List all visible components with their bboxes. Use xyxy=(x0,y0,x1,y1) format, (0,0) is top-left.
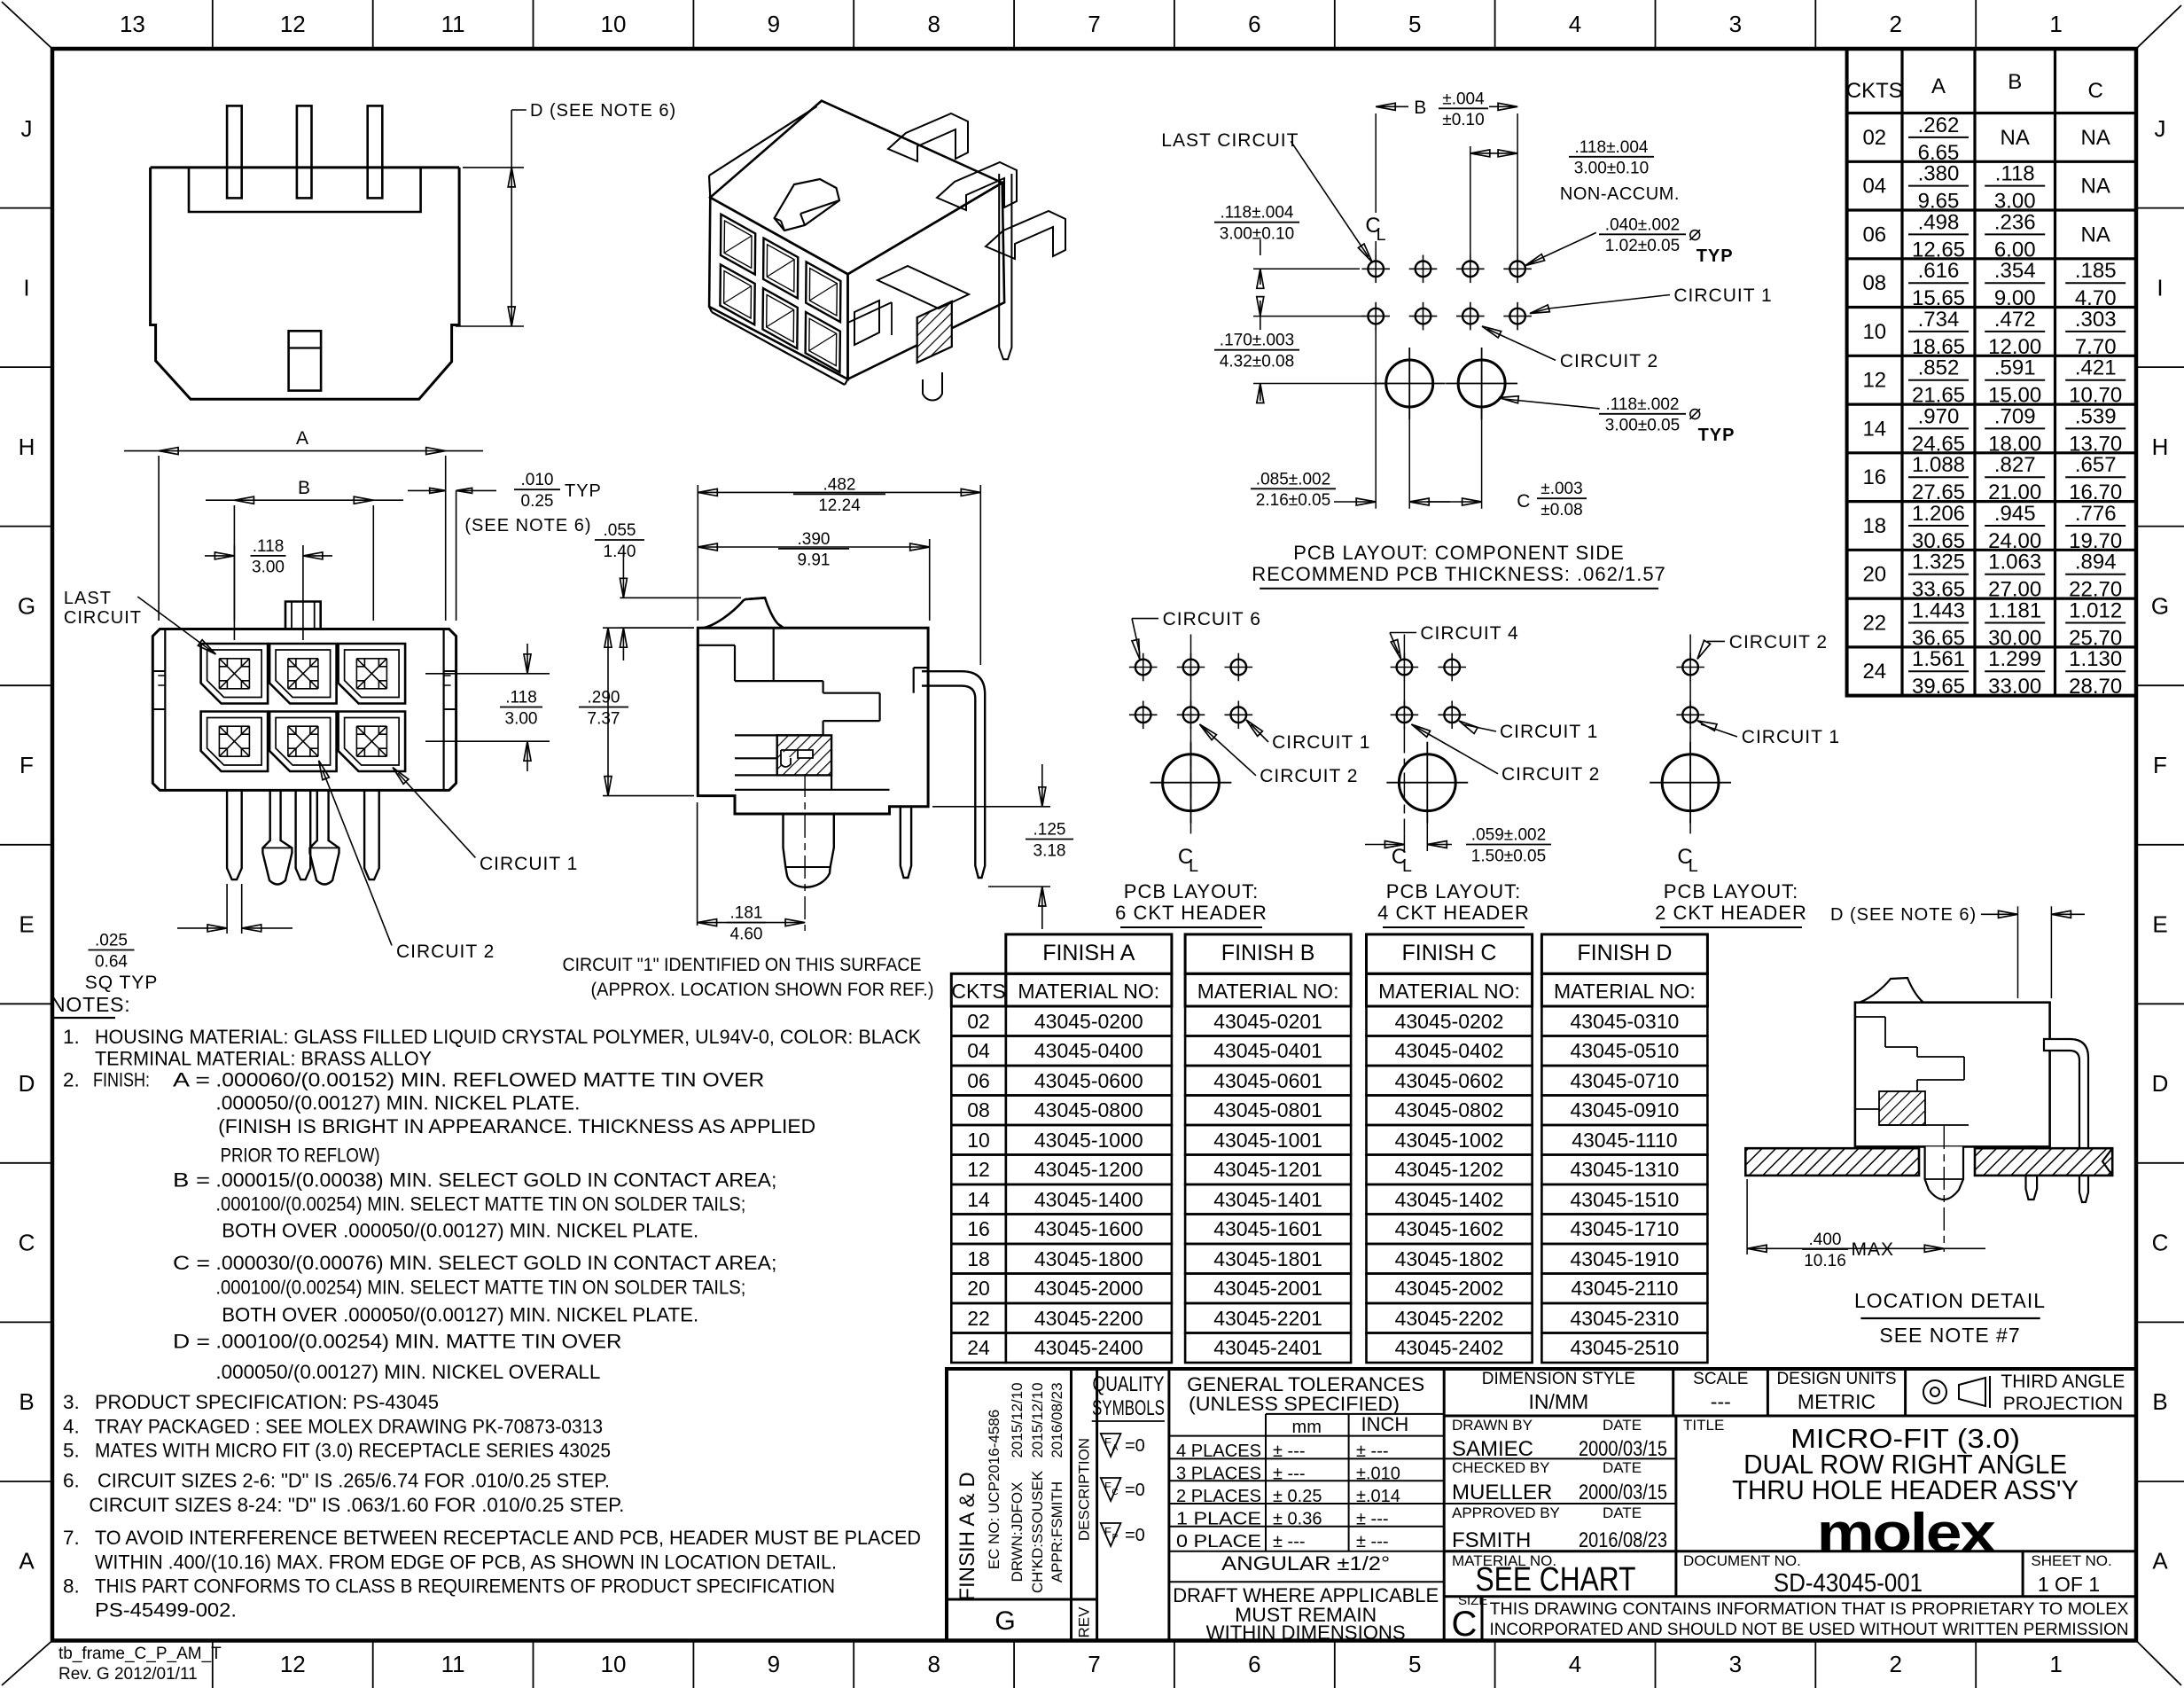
svg-text:43045-2001: 43045-2001 xyxy=(1213,1277,1322,1300)
svg-text:F: F xyxy=(1104,1435,1111,1449)
svg-text:D: D xyxy=(19,1070,35,1097)
svg-text:43045-1201: 43045-1201 xyxy=(1213,1158,1322,1181)
svg-text:18: 18 xyxy=(1862,514,1886,538)
svg-text:.000100/(0.00254) MIN. SELECT: .000100/(0.00254) MIN. SELECT MATTE TIN … xyxy=(215,1193,745,1215)
svg-text:INCH: INCH xyxy=(1361,1413,1409,1435)
svg-text:1.325: 1.325 xyxy=(1912,551,1965,574)
svg-text:1.02±0.05: 1.02±0.05 xyxy=(1605,237,1680,255)
svg-text:SD-43045-001: SD-43045-001 xyxy=(1774,1569,1923,1598)
svg-text:LAST CIRCUIT: LAST CIRCUIT xyxy=(1161,130,1299,151)
svg-text:3.00±0.10: 3.00±0.10 xyxy=(1574,160,1649,178)
svg-text:3 PLACES: 3 PLACES xyxy=(1176,1465,1261,1484)
svg-text:43045-1802: 43045-1802 xyxy=(1395,1247,1504,1270)
svg-text:.000030/(0.00076) MIN. SELECT: .000030/(0.00076) MIN. SELECT GOLD IN CO… xyxy=(215,1252,776,1274)
svg-text:I: I xyxy=(2157,274,2163,301)
svg-text:CIRCUIT 1: CIRCUIT 1 xyxy=(480,854,578,874)
svg-text:12.24: 12.24 xyxy=(818,496,861,515)
svg-text:14: 14 xyxy=(1862,417,1886,441)
svg-text:(APPROX. LOCATION SHOWN FOR RE: (APPROX. LOCATION SHOWN FOR REF.) xyxy=(591,980,934,1000)
svg-text:43045-1000: 43045-1000 xyxy=(1034,1129,1143,1152)
svg-text:±.003: ±.003 xyxy=(1540,480,1582,498)
svg-text:DRAWN BY: DRAWN BY xyxy=(1452,1417,1533,1434)
svg-text:3: 3 xyxy=(1729,1651,1742,1677)
svg-text:=0: =0 xyxy=(1125,1436,1145,1456)
svg-text:6 CKT HEADER: 6 CKT HEADER xyxy=(1115,902,1267,924)
svg-text:G: G xyxy=(2151,592,2169,619)
svg-text:CKTS: CKTS xyxy=(1846,79,1903,103)
svg-text:CIRCUIT 1: CIRCUIT 1 xyxy=(1742,727,1840,747)
svg-text:43045-2000: 43045-2000 xyxy=(1034,1277,1143,1300)
svg-text:B: B xyxy=(19,1388,34,1415)
svg-text:2.16±0.05: 2.16±0.05 xyxy=(1256,491,1330,510)
svg-text:CIRCUIT 6: CIRCUIT 6 xyxy=(1163,609,1261,629)
svg-text:THRU HOLE HEADER ASS'Y: THRU HOLE HEADER ASS'Y xyxy=(1732,1474,2079,1505)
svg-text:FINISH C: FINISH C xyxy=(1402,941,1497,965)
svg-text:.125: .125 xyxy=(1033,821,1066,840)
svg-text:⌀: ⌀ xyxy=(1689,401,1701,425)
svg-text:24: 24 xyxy=(1862,660,1886,684)
svg-text:SCALE: SCALE xyxy=(1693,1370,1748,1388)
svg-text:1.299: 1.299 xyxy=(1988,647,2041,671)
svg-text:02: 02 xyxy=(967,1010,990,1033)
svg-text:APPR:FSMITH: APPR:FSMITH xyxy=(1049,1481,1065,1582)
svg-text:22: 22 xyxy=(1862,612,1886,636)
svg-text:=0: =0 xyxy=(1125,1481,1145,1500)
svg-text:43045-0200: 43045-0200 xyxy=(1034,1010,1143,1033)
svg-text:WITHIN .400/(10.16) MAX. FROM: WITHIN .400/(10.16) MAX. FROM EDGE OF PC… xyxy=(95,1551,837,1574)
svg-text:1.088: 1.088 xyxy=(1912,453,1965,477)
svg-text:.400: .400 xyxy=(1809,1231,1842,1249)
svg-text:.118±.004: .118±.004 xyxy=(1575,138,1649,157)
svg-text:FINISH B: FINISH B xyxy=(1221,941,1315,965)
svg-text:± ---: ± --- xyxy=(1356,1532,1389,1551)
svg-text:10: 10 xyxy=(601,1651,627,1677)
svg-text:2016/08/23: 2016/08/23 xyxy=(1579,1528,1667,1552)
svg-text:2015/12/10: 2015/12/10 xyxy=(1009,1382,1026,1457)
svg-text:CIRCUIT 2: CIRCUIT 2 xyxy=(1260,766,1358,786)
svg-text:02: 02 xyxy=(1862,126,1886,150)
svg-text:.055: .055 xyxy=(604,521,636,540)
svg-text:43045-1202: 43045-1202 xyxy=(1395,1158,1504,1181)
svg-text:MATERIAL NO:: MATERIAL NO: xyxy=(1197,980,1339,1003)
svg-text:=0: =0 xyxy=(1125,1526,1145,1545)
svg-text:3.00±0.10: 3.00±0.10 xyxy=(1220,225,1294,244)
svg-text:08: 08 xyxy=(1862,271,1886,295)
svg-text:E: E xyxy=(19,911,34,938)
svg-text:.482: .482 xyxy=(823,475,856,494)
svg-text:L: L xyxy=(1689,856,1698,876)
svg-text:0 PLACE: 0 PLACE xyxy=(1176,1532,1261,1551)
svg-text:B: B xyxy=(1414,98,1426,118)
svg-text:08: 08 xyxy=(967,1098,990,1121)
svg-text:3.00: 3.00 xyxy=(505,709,538,728)
svg-text:F: F xyxy=(1104,1480,1111,1493)
svg-text:.354: .354 xyxy=(1994,259,2036,283)
svg-text:2 PLACES: 2 PLACES xyxy=(1176,1487,1261,1506)
svg-text:SEE NOTE #7: SEE NOTE #7 xyxy=(1879,1324,2020,1347)
svg-text:6.: 6. xyxy=(63,1470,80,1492)
svg-text:43045-0602: 43045-0602 xyxy=(1395,1069,1504,1092)
svg-text:22: 22 xyxy=(967,1307,990,1330)
svg-text:F: F xyxy=(1104,1525,1111,1538)
svg-text:43045-0600: 43045-0600 xyxy=(1034,1069,1143,1092)
svg-text:43045-2110: 43045-2110 xyxy=(1571,1277,1678,1300)
svg-text:Rev. G 2012/01/11: Rev. G 2012/01/11 xyxy=(58,1665,198,1684)
svg-text:H: H xyxy=(19,434,35,460)
svg-text:.421: .421 xyxy=(2075,356,2117,380)
svg-text:9: 9 xyxy=(768,1651,780,1677)
svg-text:SEE CHART: SEE CHART xyxy=(1476,1561,1636,1598)
svg-text:LAST: LAST xyxy=(64,589,112,608)
svg-text:18: 18 xyxy=(967,1247,990,1270)
svg-text:± ---: ± --- xyxy=(1356,1442,1389,1461)
svg-text:TRAY PACKAGED : SEE MOLEX DRAW: TRAY PACKAGED : SEE MOLEX DRAWING PK-708… xyxy=(95,1415,603,1437)
svg-text:G: G xyxy=(994,1606,1015,1636)
svg-text:43045-1800: 43045-1800 xyxy=(1034,1247,1143,1270)
svg-text:43045-0510: 43045-0510 xyxy=(1571,1039,1680,1062)
svg-text:B: B xyxy=(2008,70,2022,94)
svg-text:PCB LAYOUT:: PCB LAYOUT: xyxy=(1664,880,1798,903)
svg-text:2 CKT HEADER: 2 CKT HEADER xyxy=(1655,902,1807,924)
svg-text:.000050/(0.00127) MIN. NICKEL: .000050/(0.00127) MIN. NICKEL OVERALL xyxy=(215,1361,600,1383)
svg-text:A: A xyxy=(1931,74,1946,98)
svg-text:43045-1200: 43045-1200 xyxy=(1034,1158,1143,1181)
svg-text:20: 20 xyxy=(1862,563,1886,587)
svg-text:BOTH OVER .000050/(0.00127) MI: BOTH OVER .000050/(0.00127) MIN. NICKEL … xyxy=(222,1303,698,1325)
svg-text:J: J xyxy=(21,115,33,142)
svg-text:B =: B = xyxy=(173,1169,210,1192)
svg-text:DRWN:JDFOX: DRWN:JDFOX xyxy=(1009,1481,1026,1582)
svg-text:0.25: 0.25 xyxy=(521,492,554,511)
svg-text:NA: NA xyxy=(2081,223,2110,246)
svg-text:MATES WITH MICRO FIT (3.0) REC: MATES WITH MICRO FIT (3.0) RECEPTACLE SE… xyxy=(95,1439,611,1461)
svg-text:± 0.36: ± 0.36 xyxy=(1273,1509,1322,1528)
svg-text:43045-0910: 43045-0910 xyxy=(1571,1098,1680,1121)
svg-text:SHEET NO.: SHEET NO. xyxy=(2031,1552,2111,1569)
svg-text:A: A xyxy=(2152,1548,2168,1575)
svg-text:CIRCUIT 4: CIRCUIT 4 xyxy=(1420,623,1518,644)
svg-text:IN/MM: IN/MM xyxy=(1528,1390,1588,1413)
svg-text:±0.08: ±0.08 xyxy=(1540,501,1582,520)
svg-text:04: 04 xyxy=(967,1039,990,1062)
svg-text:43045-0401: 43045-0401 xyxy=(1213,1039,1322,1062)
svg-text:7.: 7. xyxy=(63,1527,80,1549)
svg-text:1.443: 1.443 xyxy=(1912,599,1965,623)
svg-text:.539: .539 xyxy=(2075,404,2117,428)
svg-text:± 0.25: ± 0.25 xyxy=(1273,1487,1322,1506)
svg-text:H: H xyxy=(2152,434,2169,460)
svg-text:43045-2201: 43045-2201 xyxy=(1213,1307,1322,1330)
svg-text:43045-0710: 43045-0710 xyxy=(1571,1069,1680,1092)
svg-text:5: 5 xyxy=(1408,1651,1421,1677)
svg-text:10: 10 xyxy=(601,11,627,37)
svg-text:.945: .945 xyxy=(1994,502,2036,526)
svg-text:1.130: 1.130 xyxy=(2069,647,2122,671)
svg-text:.290: .290 xyxy=(588,689,620,707)
svg-text:1.206: 1.206 xyxy=(1912,502,1965,526)
svg-text:PS-45499-002.: PS-45499-002. xyxy=(95,1599,237,1622)
svg-text:43045-1601: 43045-1601 xyxy=(1213,1217,1322,1240)
svg-text:43045-0310: 43045-0310 xyxy=(1571,1010,1680,1033)
svg-text:NA: NA xyxy=(2081,175,2110,199)
svg-text:(UNLESS SPECIFIED): (UNLESS SPECIFIED) xyxy=(1189,1393,1400,1415)
svg-text:APPROVED BY: APPROVED BY xyxy=(1452,1504,1560,1521)
svg-text:5.: 5. xyxy=(63,1439,80,1461)
svg-text:ANGULAR ±1/2°: ANGULAR ±1/2° xyxy=(1221,1552,1390,1575)
svg-text:NOTES:: NOTES: xyxy=(51,993,130,1016)
svg-text:11: 11 xyxy=(441,11,465,37)
svg-text:43045-0402: 43045-0402 xyxy=(1395,1039,1504,1062)
svg-text:NON-ACCUM.: NON-ACCUM. xyxy=(1560,184,1680,204)
svg-text:DIMENSION STYLE: DIMENSION STYLE xyxy=(1482,1370,1635,1388)
svg-text:1.: 1. xyxy=(63,1026,80,1048)
svg-text:43045-2510: 43045-2510 xyxy=(1571,1336,1680,1359)
svg-text:F: F xyxy=(2153,752,2167,778)
svg-text:MATERIAL NO:: MATERIAL NO: xyxy=(1378,980,1520,1003)
svg-text:.059±.002: .059±.002 xyxy=(1471,826,1546,845)
svg-text:.000100/(0.00254) MIN. MATTE T: .000100/(0.00254) MIN. MATTE TIN OVER xyxy=(215,1331,621,1353)
svg-text:FINISH A: FINISH A xyxy=(1042,941,1135,965)
svg-text:1: 1 xyxy=(2049,1651,2062,1677)
svg-text:PCB LAYOUT:: PCB LAYOUT: xyxy=(1124,880,1259,903)
svg-text:± ---: ± --- xyxy=(1356,1509,1389,1528)
svg-text:J: J xyxy=(2155,115,2166,142)
svg-text:C: C xyxy=(1517,491,1530,512)
svg-text:39.65: 39.65 xyxy=(1912,675,1965,699)
svg-text:DESIGN UNITS: DESIGN UNITS xyxy=(1776,1370,1896,1388)
svg-text:1 OF 1: 1 OF 1 xyxy=(2038,1573,2100,1596)
svg-text:L: L xyxy=(1402,856,1412,876)
svg-text:F: F xyxy=(19,752,34,778)
svg-text:4.32±0.08: 4.32±0.08 xyxy=(1220,353,1294,371)
svg-text:D (SEE NOTE 6): D (SEE NOTE 6) xyxy=(1830,905,1977,925)
svg-text:2016/08/23: 2016/08/23 xyxy=(1049,1382,1065,1457)
svg-text:1.561: 1.561 xyxy=(1912,647,1965,671)
svg-text:43045-1001: 43045-1001 xyxy=(1213,1129,1322,1152)
svg-text:A: A xyxy=(1112,1443,1119,1453)
svg-text:DATE: DATE xyxy=(1603,1504,1642,1521)
svg-text:6: 6 xyxy=(1248,1651,1260,1677)
svg-text:± ---: ± --- xyxy=(1273,1442,1306,1461)
svg-text:NA: NA xyxy=(2081,126,2110,150)
svg-text:(FINISH IS BRIGHT IN APPEARANC: (FINISH IS BRIGHT IN APPEARANCE. THICKNE… xyxy=(218,1115,815,1137)
svg-text:MUELLER: MUELLER xyxy=(1452,1481,1552,1504)
svg-text:E: E xyxy=(2152,911,2167,938)
svg-text:43045-0201: 43045-0201 xyxy=(1213,1010,1322,1033)
svg-text:---: --- xyxy=(1711,1390,1731,1413)
svg-text:8.: 8. xyxy=(63,1575,80,1598)
svg-text:3.: 3. xyxy=(63,1391,80,1413)
svg-text:mm: mm xyxy=(1292,1418,1322,1437)
svg-text:B: B xyxy=(2152,1388,2167,1415)
svg-text:.000060/(0.00152) MIN. REFLOWE: .000060/(0.00152) MIN. REFLOWED MATTE TI… xyxy=(215,1069,764,1091)
svg-text:FINISH D: FINISH D xyxy=(1577,941,1672,965)
svg-text:43045-1402: 43045-1402 xyxy=(1395,1188,1504,1211)
svg-text:P: P xyxy=(1112,1533,1119,1543)
svg-text:.000015/(0.00038) MIN. SELECT: .000015/(0.00038) MIN. SELECT GOLD IN CO… xyxy=(215,1169,776,1192)
svg-text:.616: .616 xyxy=(1918,259,1960,283)
svg-text:2000/03/15: 2000/03/15 xyxy=(1579,1437,1667,1461)
svg-text:14: 14 xyxy=(967,1188,990,1211)
svg-text:.185: .185 xyxy=(2075,259,2117,283)
svg-text:.657: .657 xyxy=(2075,453,2117,477)
svg-text:.118±.004: .118±.004 xyxy=(1221,204,1294,223)
svg-text:.118: .118 xyxy=(505,689,537,707)
svg-text:43045-0801: 43045-0801 xyxy=(1213,1098,1322,1121)
svg-text:3: 3 xyxy=(1729,11,1742,37)
svg-text:C: C xyxy=(2152,1230,2169,1256)
svg-text:43045-0400: 43045-0400 xyxy=(1034,1039,1143,1062)
svg-text:3.00: 3.00 xyxy=(252,559,285,577)
svg-text:.118±.002: .118±.002 xyxy=(1606,395,1680,414)
svg-text:CIRCUIT 1: CIRCUIT 1 xyxy=(1673,285,1772,306)
svg-text:10: 10 xyxy=(967,1129,990,1152)
svg-text:MATERIAL NO:: MATERIAL NO: xyxy=(1018,980,1159,1003)
svg-text:EC NO: UCP2016-4586: EC NO: UCP2016-4586 xyxy=(986,1410,1002,1569)
svg-text:FSMITH: FSMITH xyxy=(1452,1528,1531,1552)
svg-text:.852: .852 xyxy=(1918,356,1960,380)
svg-text:.085±.002: .085±.002 xyxy=(1256,470,1330,488)
svg-text:MAX: MAX xyxy=(1852,1239,1895,1260)
svg-text:tb_frame_C_P_AM_T: tb_frame_C_P_AM_T xyxy=(58,1645,222,1663)
svg-text:.734: .734 xyxy=(1918,308,1960,332)
svg-text:.010: .010 xyxy=(521,471,554,489)
svg-text:NA: NA xyxy=(2001,126,2030,150)
svg-text:PCB LAYOUT: COMPONENT SIDE: PCB LAYOUT: COMPONENT SIDE xyxy=(1293,542,1625,564)
svg-text:43045-1910: 43045-1910 xyxy=(1571,1247,1680,1270)
svg-text:28.70: 28.70 xyxy=(2069,675,2122,699)
svg-text:43045-0202: 43045-0202 xyxy=(1395,1010,1504,1033)
svg-text:± ---: ± --- xyxy=(1273,1532,1306,1551)
svg-text:.303: .303 xyxy=(2075,308,2117,332)
svg-text:C: C xyxy=(1452,1605,1478,1644)
svg-text:CIRCUIT 2: CIRCUIT 2 xyxy=(1729,632,1828,653)
svg-text:PROJECTION: PROJECTION xyxy=(2003,1394,2123,1414)
svg-text:C =: C = xyxy=(173,1252,210,1274)
svg-text:CKTS: CKTS xyxy=(951,980,1005,1003)
svg-text:.498: .498 xyxy=(1918,210,1960,234)
svg-text:TYP: TYP xyxy=(565,481,602,501)
svg-text:.236: .236 xyxy=(1994,210,2036,234)
svg-text:.591: .591 xyxy=(1994,356,2036,380)
svg-text:PRODUCT SPECIFICATION: PS-430: PRODUCT SPECIFICATION: PS-43045 xyxy=(95,1391,439,1413)
svg-text:.827: .827 xyxy=(1994,453,2036,477)
svg-text:A: A xyxy=(19,1548,35,1575)
svg-text:THIRD ANGLE: THIRD ANGLE xyxy=(2001,1371,2125,1392)
svg-text:molex: molex xyxy=(1817,1503,1997,1564)
svg-text:CIRCUIT SIZES 8-24: "D" IS .06: CIRCUIT SIZES 8-24: "D" IS .063/1.60 FOR… xyxy=(89,1494,624,1516)
svg-text:D: D xyxy=(2152,1070,2169,1097)
svg-text:4: 4 xyxy=(1569,1651,1581,1677)
svg-text:43045-1110: 43045-1110 xyxy=(1572,1129,1677,1152)
svg-text:METRIC: METRIC xyxy=(1798,1390,1876,1413)
svg-text:06: 06 xyxy=(967,1069,990,1092)
svg-text:CIRCUIT 2: CIRCUIT 2 xyxy=(396,942,495,962)
svg-text:DOCUMENT NO.: DOCUMENT NO. xyxy=(1683,1552,1801,1569)
svg-text:HOUSING MATERIAL: GLASS FILLE: HOUSING MATERIAL: GLASS FILLED LIQUID CR… xyxy=(95,1026,921,1048)
svg-text:9.91: 9.91 xyxy=(798,551,831,570)
svg-text:.709: .709 xyxy=(1994,404,2036,428)
svg-text:TO AVOID INTERFERENCE BETWEEN: TO AVOID INTERFERENCE BETWEEN RECEPTACLE… xyxy=(95,1527,921,1549)
svg-text:CHECKED BY: CHECKED BY xyxy=(1452,1459,1550,1476)
svg-text:.118: .118 xyxy=(253,537,285,556)
svg-text:.894: .894 xyxy=(2075,551,2117,574)
svg-text:.118: .118 xyxy=(1995,162,2035,186)
svg-text:33.00: 33.00 xyxy=(1988,675,2041,699)
svg-text:16: 16 xyxy=(1862,465,1886,489)
svg-text:43045-0802: 43045-0802 xyxy=(1395,1098,1504,1121)
svg-text:.025: .025 xyxy=(95,932,128,950)
svg-text:DATE: DATE xyxy=(1603,1417,1642,1434)
svg-text:10: 10 xyxy=(1862,320,1886,344)
svg-text:± ---: ± --- xyxy=(1273,1465,1306,1484)
svg-text:C: C xyxy=(19,1230,35,1256)
svg-text:43045-2310: 43045-2310 xyxy=(1571,1307,1680,1330)
svg-text:TERMINAL MATERIAL: BRASS ALLO: TERMINAL MATERIAL: BRASS ALLOY xyxy=(95,1048,432,1070)
svg-text:3.00±0.05: 3.00±0.05 xyxy=(1605,417,1680,435)
svg-text:12: 12 xyxy=(967,1158,990,1181)
svg-text:.262: .262 xyxy=(1918,113,1960,137)
svg-text:8: 8 xyxy=(927,1651,940,1677)
svg-text:CIRCUIT 1: CIRCUIT 1 xyxy=(1272,732,1370,753)
svg-text:7: 7 xyxy=(1088,11,1100,37)
svg-text:1.012: 1.012 xyxy=(2069,599,2122,623)
svg-text:DATE: DATE xyxy=(1603,1459,1642,1476)
svg-text:04: 04 xyxy=(1862,175,1886,199)
svg-text:1.50±0.05: 1.50±0.05 xyxy=(1471,847,1546,865)
svg-text:43045-1310: 43045-1310 xyxy=(1571,1158,1680,1181)
svg-text:±.004: ±.004 xyxy=(1442,90,1485,108)
svg-text:THIS DRAWING CONTAINS INFORMAT: THIS DRAWING CONTAINS INFORMATION THAT I… xyxy=(1490,1599,2129,1619)
svg-text:4 PLACES: 4 PLACES xyxy=(1176,1442,1261,1461)
svg-text:.170±.003: .170±.003 xyxy=(1220,332,1294,350)
svg-text:5: 5 xyxy=(1408,11,1421,37)
svg-text:12: 12 xyxy=(280,1651,306,1677)
svg-text:PCB LAYOUT:: PCB LAYOUT: xyxy=(1386,880,1521,903)
svg-text:16: 16 xyxy=(967,1217,990,1240)
svg-text:±.010: ±.010 xyxy=(1356,1465,1400,1484)
svg-text:DESCRIPTION: DESCRIPTION xyxy=(1076,1438,1093,1541)
svg-text:10.16: 10.16 xyxy=(1804,1252,1846,1270)
svg-text:7: 7 xyxy=(1088,1651,1100,1677)
svg-text:L: L xyxy=(1189,856,1198,876)
svg-text:43045-2401: 43045-2401 xyxy=(1213,1336,1322,1359)
svg-text:1.063: 1.063 xyxy=(1988,551,2041,574)
svg-text:13: 13 xyxy=(120,11,145,37)
svg-text:CIRCUIT 2: CIRCUIT 2 xyxy=(1501,764,1600,785)
svg-text:2000/03/15: 2000/03/15 xyxy=(1579,1481,1667,1504)
svg-text:43045-1600: 43045-1600 xyxy=(1034,1217,1143,1240)
svg-text:2015/12/10: 2015/12/10 xyxy=(1029,1382,1046,1457)
svg-text:43045-2202: 43045-2202 xyxy=(1395,1307,1504,1330)
svg-text:43045-1510: 43045-1510 xyxy=(1571,1188,1680,1211)
svg-text:1.40: 1.40 xyxy=(604,543,636,561)
svg-text:1 PLACE: 1 PLACE xyxy=(1176,1509,1261,1528)
svg-text:INCORPORATED AND SHOULD NOT BE: INCORPORATED AND SHOULD NOT BE USED WITH… xyxy=(1490,1620,2129,1639)
svg-text:TYP: TYP xyxy=(1696,246,1734,266)
svg-text:SQ TYP: SQ TYP xyxy=(85,973,159,993)
svg-text:7.37: 7.37 xyxy=(588,709,620,728)
svg-text:4.: 4. xyxy=(63,1415,80,1437)
svg-text:TYP: TYP xyxy=(1698,426,1735,445)
svg-text:PRIOR TO REFLOW): PRIOR TO REFLOW) xyxy=(221,1144,380,1166)
svg-text:SYMBOLS: SYMBOLS xyxy=(1092,1396,1165,1420)
svg-text:43045-1710: 43045-1710 xyxy=(1571,1217,1680,1240)
svg-text:.380: .380 xyxy=(1918,162,1960,186)
svg-text:D =: D = xyxy=(173,1331,210,1353)
svg-text:SAMIEC: SAMIEC xyxy=(1452,1437,1533,1461)
svg-text:BOTH OVER .000050/(0.00127) MI: BOTH OVER .000050/(0.00127) MIN. NICKEL … xyxy=(222,1220,698,1242)
